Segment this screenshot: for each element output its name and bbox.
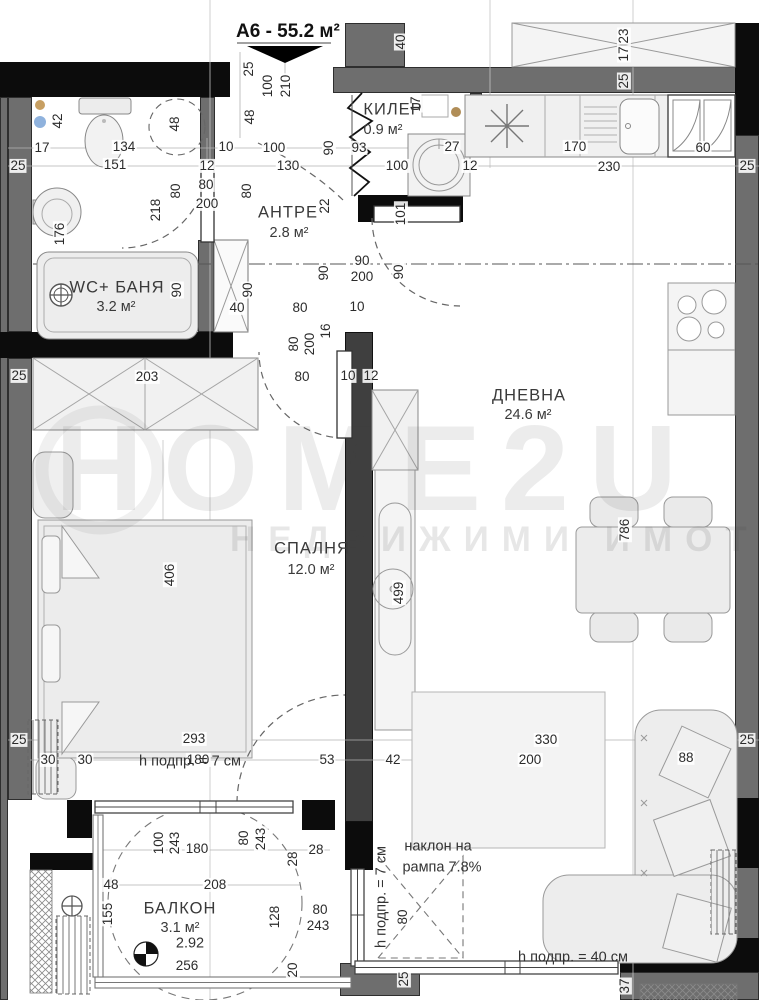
dimension-label: 90 [392, 263, 406, 280]
dimension-label: 293 [182, 732, 207, 746]
dimension-label: 23 [617, 27, 631, 44]
dimension-label: 90 [353, 254, 370, 268]
dimension-label: 100 [385, 159, 410, 173]
dimension-label: 90 [170, 281, 184, 298]
dimension-label: 100 [261, 74, 275, 99]
dimension-label: 134 [112, 140, 137, 154]
dimension-label: 80 [197, 178, 214, 192]
room-area-label: 12.0 м² [287, 562, 334, 578]
dimension-label: 17 [33, 141, 50, 155]
dimension-label: 200 [303, 332, 317, 357]
dimension-label: 22 [318, 197, 332, 214]
dimension-label: 25 [9, 159, 26, 173]
room-area-label: 2.8 м² [270, 225, 309, 241]
dimension-label: 90 [322, 139, 336, 156]
dimension-label: 40 [228, 301, 245, 315]
room-name-label: БАЛКОН [144, 900, 217, 919]
dimension-label: 25 [10, 369, 27, 383]
dimension-label: 16 [319, 322, 333, 339]
room-name-label: АНТРЕ [258, 204, 318, 223]
room-area-label: 24.6 м² [504, 407, 551, 423]
dimension-label: 88 [677, 751, 694, 765]
dimension-label: 200 [350, 270, 375, 284]
dimension-label: 27 [443, 140, 460, 154]
dimension-label: 30 [76, 753, 93, 767]
dimension-label: 101 [394, 202, 408, 227]
room-name-label: КИЛЕР [363, 101, 422, 120]
annotation-label: 2.92 [176, 936, 204, 951]
dimension-label: 93 [350, 141, 367, 155]
dimension-label: 80 [169, 182, 183, 199]
dimension-label: 10 [339, 369, 356, 383]
dimension-label: 155 [101, 902, 115, 927]
dimension-label: 499 [392, 581, 406, 606]
dimension-label: 180 [185, 842, 210, 856]
room-area-label: 0.9 м² [364, 122, 403, 138]
dimension-label: 60 [694, 141, 711, 155]
dimension-label: 53 [318, 753, 335, 767]
annotation-label: h подпр. = 40 см [518, 950, 628, 965]
dimension-label: 37 [618, 977, 632, 994]
room-name-label: ДНЕВНА [492, 387, 566, 406]
floor-plan: HOME2U НЕДВИЖИМИ ИМОТИ [0, 0, 759, 1000]
dimension-label: 17 [617, 45, 631, 62]
annotation-label: наклон на [404, 839, 471, 854]
dimension-label: 80 [287, 335, 301, 352]
dimension-label: 90 [317, 264, 331, 281]
annotation-label: h подпр. = 7 см [139, 754, 241, 769]
dimension-label: 218 [149, 198, 163, 223]
annotation-label: рампа 7.8% [402, 860, 481, 875]
dimension-label: 48 [168, 115, 182, 132]
dimension-label: 80 [293, 370, 310, 384]
room-area-label: 3.2 м² [97, 299, 136, 315]
dimension-label: 10 [217, 140, 234, 154]
dimension-label: 25 [738, 733, 755, 747]
dimension-label: 176 [53, 222, 67, 247]
dimension-label: 243 [254, 827, 268, 852]
dimension-label: 25 [10, 733, 27, 747]
room-area-label: 3.1 м² [161, 920, 200, 936]
dimension-label: 90 [241, 281, 255, 298]
dimension-label: 12 [461, 159, 478, 173]
dimension-label: 128 [268, 905, 282, 930]
dimension-label: 28 [286, 850, 300, 867]
dimension-label: 25 [397, 970, 411, 987]
room-name-label: WC+ БАНЯ [69, 279, 164, 298]
dimension-label: 330 [534, 733, 559, 747]
dimension-label: 203 [135, 370, 160, 384]
dimension-label: 28 [307, 843, 324, 857]
dimension-label: 151 [103, 158, 128, 172]
dimension-label: 243 [168, 831, 182, 856]
dimension-label: 10 [348, 300, 365, 314]
dimension-label: 406 [163, 563, 177, 588]
dimension-label: 25 [617, 72, 631, 89]
dimension-label: 80 [240, 182, 254, 199]
dimension-label: 80 [396, 908, 410, 925]
dimension-label: 210 [279, 74, 293, 99]
dimension-label: 243 [306, 919, 331, 933]
dimension-label: 786 [618, 518, 632, 543]
dimension-label: 170 [563, 140, 588, 154]
dimension-label: 20 [286, 961, 300, 978]
dimension-label: 100 [262, 141, 287, 155]
dimension-label: 80 [311, 903, 328, 917]
dimension-label: 100 [152, 831, 166, 856]
dimension-label: 80 [237, 829, 251, 846]
dimension-label: 12 [198, 159, 215, 173]
dimension-label: 200 [518, 753, 543, 767]
dimension-label: 25 [242, 60, 256, 77]
labels-layer: 2510021048402317254217134151482510100909… [0, 0, 759, 1000]
dimension-label: 30 [39, 753, 56, 767]
dimension-label: 40 [394, 33, 408, 50]
dimension-label: 200 [195, 197, 220, 211]
dimension-label: 130 [276, 159, 301, 173]
room-name-label: СПАЛНЯ [274, 540, 350, 559]
dimension-label: 12 [362, 369, 379, 383]
dimension-label: 80 [291, 301, 308, 315]
dimension-label: 42 [384, 753, 401, 767]
dimension-label: 48 [102, 878, 119, 892]
dimension-label: 25 [738, 159, 755, 173]
dimension-label: 208 [203, 878, 228, 892]
dimension-label: 48 [243, 108, 257, 125]
dimension-label: 230 [597, 160, 622, 174]
annotation-label: h подпр. = 7 см [374, 846, 389, 948]
dimension-label: 256 [175, 959, 200, 973]
dimension-label: 42 [51, 112, 65, 129]
